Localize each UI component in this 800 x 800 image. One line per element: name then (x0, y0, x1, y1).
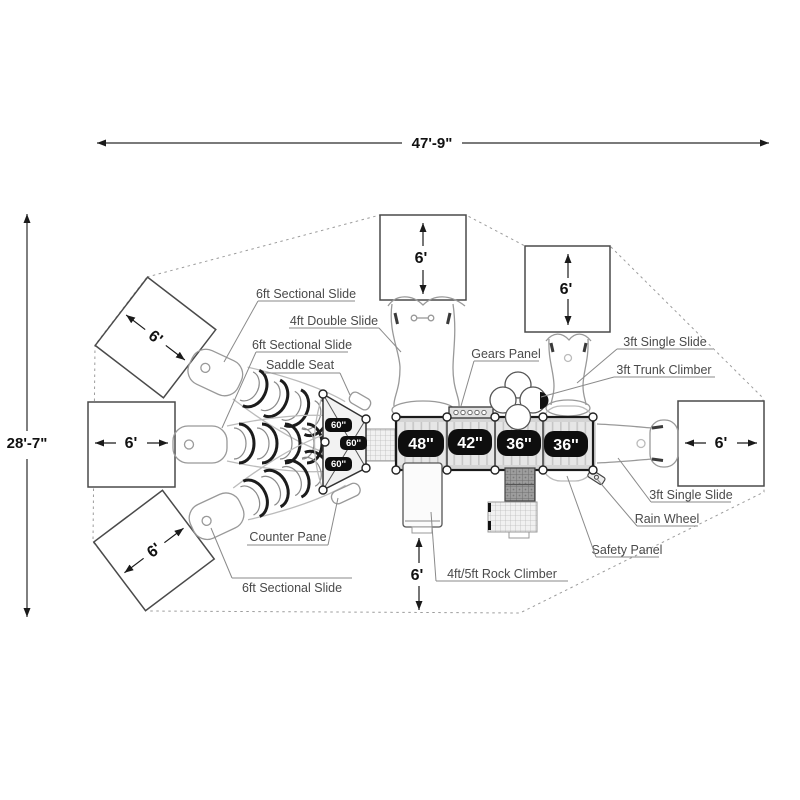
callout-label: 6ft Sectional Slide (242, 581, 342, 595)
single-slide-top-right (546, 334, 591, 416)
callout-label: Safety Panel (592, 543, 663, 557)
clearance-zone-top-left: 6' (95, 277, 216, 398)
callout-label: 6ft Sectional Slide (256, 287, 356, 301)
fan-deck-label: 60'' (331, 459, 346, 470)
transfer-step (366, 429, 395, 461)
safety-panel-element (488, 468, 537, 538)
clearance-zone-bottom-left: 6' (94, 490, 214, 610)
overall-height-label: 28'-7" (7, 435, 48, 452)
deck-label-36a: 36'' (506, 436, 531, 453)
rock-climber-clearance-dim: 6' (411, 538, 424, 610)
playground-plan-canvas: 47'-9" 28'-7" 6' 6' 6' 6' 6' (0, 0, 800, 800)
gears-panel-element (449, 407, 493, 418)
callout-label: Counter Pane (249, 530, 326, 544)
slide-exit-anchor (185, 440, 194, 449)
callout-trunk-climber: 3ft Trunk Climber (541, 363, 715, 397)
callout-label: Rain Wheel (635, 512, 700, 526)
slide-exit-anchor (201, 515, 213, 527)
callout-label: Saddle Seat (266, 358, 335, 372)
overall-width-label: 47'-9" (412, 135, 453, 152)
clearance-zone-top-center: 6' (380, 215, 466, 300)
clearance-zone-top-right: 6' (525, 246, 610, 332)
callout-label: 3ft Single Slide (649, 488, 732, 502)
slide-exit-anchor (199, 362, 211, 374)
dimension-overall-height: 28'-7" (7, 214, 48, 617)
slide-exit-pad (173, 426, 227, 463)
clearance-label: 6' (125, 435, 138, 452)
clearance-zone-right: 6' (678, 401, 764, 486)
single-slide-right (597, 420, 678, 467)
deck-label-42: 42'' (457, 435, 482, 452)
clearance-label: 6' (415, 250, 428, 267)
clearance-label: 6' (560, 281, 573, 298)
clearance-label: 6' (411, 567, 424, 584)
callout-label: 4ft/5ft Rock Climber (447, 567, 557, 581)
callout-label: Gears Panel (471, 347, 540, 361)
callout-label: 4ft Double Slide (290, 314, 378, 328)
callout-label: 3ft Trunk Climber (616, 363, 711, 377)
dimension-overall-width: 47'-9" (97, 135, 769, 152)
callout-saddle-seat: Saddle Seat (264, 358, 350, 395)
double-slide (388, 297, 465, 419)
clearance-label: 6' (715, 435, 728, 452)
sectional-slide-middle-left (173, 415, 330, 471)
deck-label-36b: 36'' (553, 437, 578, 454)
callout-label: 6ft Sectional Slide (252, 338, 352, 352)
deck-row: 48'' 42'' 36'' 36'' (396, 417, 593, 470)
callout-counter-pane: Counter Pane (247, 498, 338, 545)
callout-label: 3ft Single Slide (623, 335, 706, 349)
saddle-seat-element (347, 390, 372, 411)
rock-climber-element (403, 463, 442, 533)
clearance-zone-mid-left: 6' (88, 402, 175, 487)
fan-deck-label: 60'' (331, 420, 346, 431)
plan-svg: 47'-9" 28'-7" 6' 6' 6' 6' 6' (0, 0, 800, 800)
deck-label-48: 48'' (408, 436, 433, 453)
fan-deck-label: 60'' (346, 438, 361, 449)
